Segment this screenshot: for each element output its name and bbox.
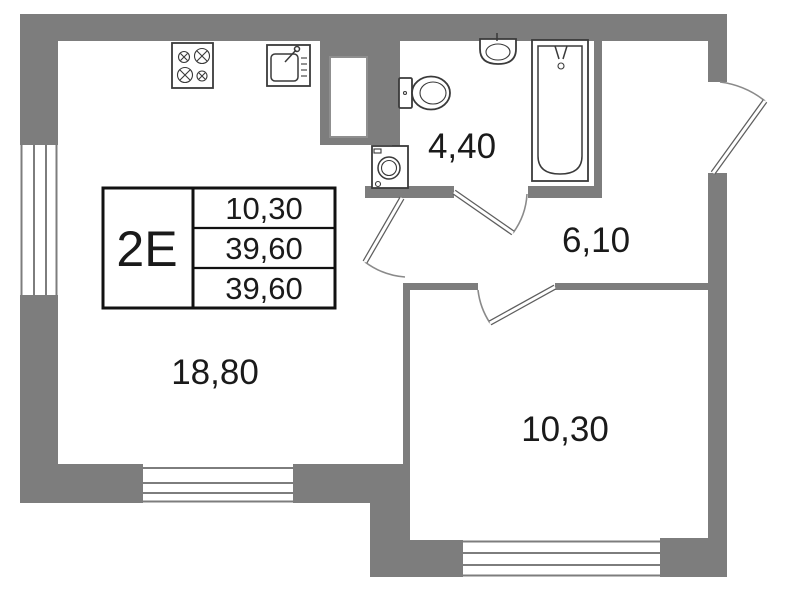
unit-label: 2E [116,221,177,277]
window-bedroom-south [463,540,660,577]
window-opening [20,145,58,295]
wall-step-living-bedroom [370,503,408,577]
room-label-living: 18,80 [171,353,259,392]
table-row-value: 10,30 [225,191,303,226]
floor-plan-drawing: 18,80 4,40 6,10 10,30 2E 10,30 39,60 39,… [0,0,799,600]
window-left [20,145,58,295]
wall-bedroom-west [403,290,410,540]
bathtub-icon [532,40,588,181]
door-swing-arc [720,82,765,101]
door-swing-arc [478,290,490,323]
table-row-value: 39,60 [225,271,303,306]
wall-south-living-left [20,464,143,503]
wall-right-upper [708,14,727,82]
wall-left-upper [20,14,58,145]
wall-bedroom-south-left [408,540,463,577]
kitchen-sink-icon [267,45,310,86]
ventilation-shaft [330,57,367,137]
entrance-door [713,82,765,173]
wall-bathroom-south-right [528,186,602,198]
wall-bathroom-east [594,41,602,198]
toilet-icon [399,77,450,110]
wall-right-lower [708,173,727,577]
table-row-value: 39,60 [225,231,303,266]
door-swing-arc [365,262,405,277]
room-label-bedroom: 10,30 [521,410,609,449]
room-label-hallway: 6,10 [562,221,630,260]
door-swing-arc [513,194,527,233]
stove-icon [172,43,213,88]
bathroom-door [454,192,527,233]
washing-machine-icon [372,146,408,188]
unit-info-table: 2E 10,30 39,60 39,60 [103,188,335,308]
bedroom-door [478,287,555,323]
window-opening [463,540,660,577]
wall-hall-bedroom-left [403,283,478,290]
wall-south-living-right [293,464,403,503]
room-label-bathroom: 4,40 [428,127,496,166]
floor-plan: 18,80 4,40 6,10 10,30 2E 10,30 39,60 39,… [0,0,799,600]
wall-hall-bedroom-right [555,283,708,290]
window-living-south [143,464,293,503]
living-room-door [365,198,405,277]
